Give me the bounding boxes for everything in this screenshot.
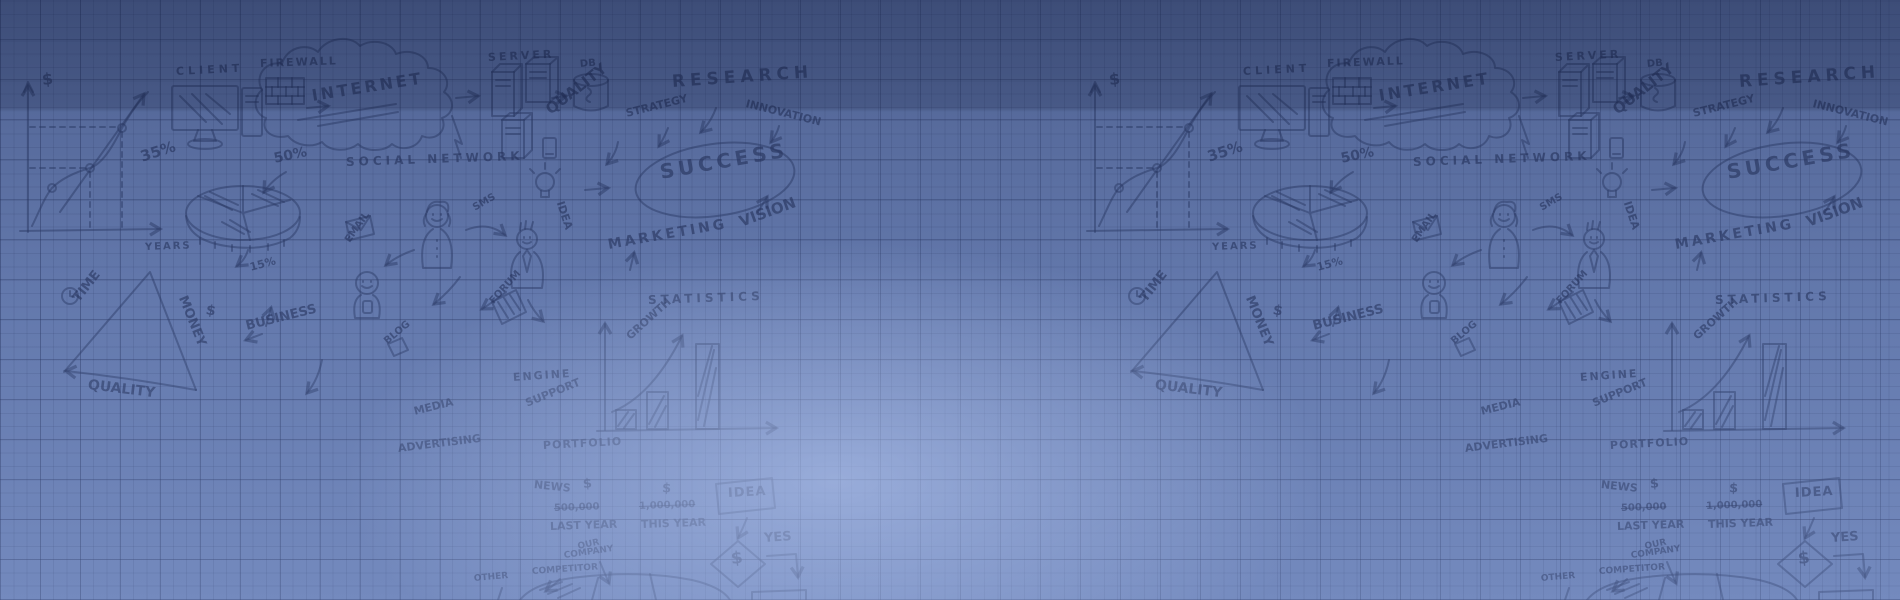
label-diamond-dollar: $	[1797, 550, 1811, 568]
label-news-dollar-2: $	[662, 482, 672, 495]
client-computer-sketch	[1239, 86, 1329, 149]
label-axis-dollar: $	[1108, 71, 1121, 88]
sales-line-chart-sketch	[1087, 82, 1227, 232]
label-news: NEWS	[533, 479, 571, 494]
label-news-dollar-1: $	[1649, 477, 1659, 491]
label-this-year: THIS YEAR	[1708, 517, 1773, 530]
phone-icon-sketch	[1610, 138, 1623, 158]
label-amount-this-year: 1,000,000	[639, 500, 696, 512]
label-last-year: LAST YEAR	[1617, 519, 1685, 532]
label-firewall: FIREWALL	[260, 55, 338, 69]
label-client: CLIENT	[176, 62, 244, 77]
label-this-year: THIS YEAR	[641, 517, 706, 530]
label-client: CLIENT	[1243, 62, 1311, 77]
phone-icon-sketch	[543, 138, 556, 158]
label-amount-last-year: 500,000	[554, 502, 600, 514]
lightbulb-icon-sketch	[1597, 163, 1627, 197]
label-server: SERVER	[1555, 49, 1622, 63]
doodle-sketches	[0, 0, 1067, 600]
pie-chart-3d-sketch	[1253, 172, 1367, 266]
label-news-dollar-2: $	[1729, 482, 1739, 495]
statistics-bar-chart-sketch	[597, 324, 776, 431]
label-yes: YES	[1831, 530, 1860, 545]
sales-line-chart-sketch	[20, 82, 160, 232]
label-years: YEARS	[145, 241, 192, 253]
label-news-dollar-1: $	[582, 477, 592, 491]
label-idea-box: IDEA	[728, 485, 767, 500]
label-diamond-dollar: $	[730, 550, 744, 568]
client-computer-sketch	[172, 86, 262, 149]
doodle-tile: $CLIENTFIREWALLINTERNETSERVERDB50%35%SOC…	[0, 0, 1067, 600]
label-idea-box: IDEA	[1795, 485, 1834, 500]
label-axis-dollar: $	[41, 71, 54, 88]
hero-banner-background: $CLIENTFIREWALLINTERNETSERVERDB50%35%SOC…	[0, 0, 1900, 600]
doodle-tile: $CLIENTFIREWALLINTERNETSERVERDB50%35%SOC…	[1067, 0, 1900, 600]
statistics-bar-chart-sketch	[1664, 324, 1843, 431]
label-years: YEARS	[1212, 241, 1259, 253]
label-amount-last-year: 500,000	[1621, 502, 1667, 514]
label-news: NEWS	[1600, 479, 1638, 494]
label-amount-this-year: 1,000,000	[1706, 500, 1763, 512]
label-yes: YES	[764, 530, 793, 545]
pie-chart-3d-sketch	[186, 172, 300, 266]
label-server: SERVER	[488, 49, 555, 63]
label-firewall: FIREWALL	[1327, 55, 1405, 69]
lightbulb-icon-sketch	[530, 163, 560, 197]
label-last-year: LAST YEAR	[550, 519, 618, 532]
